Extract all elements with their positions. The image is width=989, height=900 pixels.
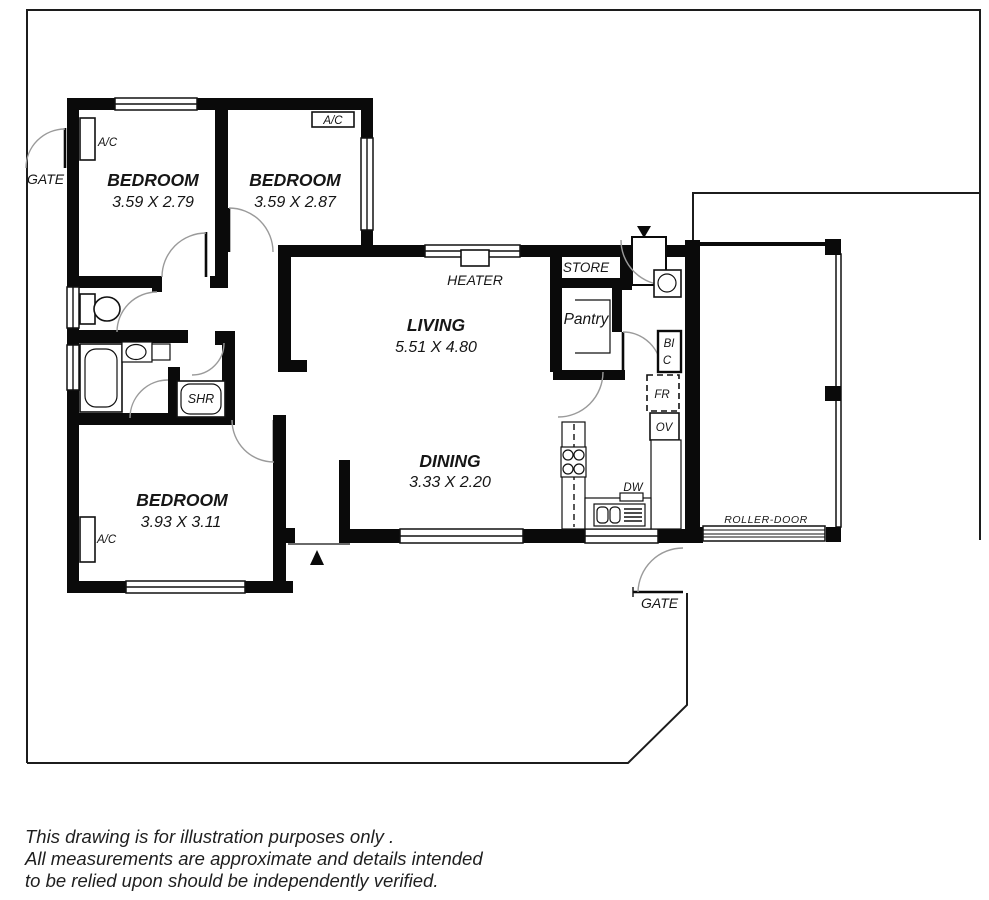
- window: [67, 287, 79, 328]
- room-dims-bedroom3: 3.93 X 3.11: [141, 514, 222, 531]
- door-arc: [229, 208, 273, 252]
- rear-fence-line: [693, 193, 980, 240]
- cooktop-fixture: [561, 447, 586, 477]
- bic-label-line2: C: [663, 355, 672, 367]
- wall: [152, 276, 162, 292]
- door-arc: [162, 233, 206, 277]
- wall: [278, 245, 291, 372]
- window: [67, 345, 79, 390]
- ac-label-bedroom1: A/C: [97, 137, 118, 149]
- laundry-trough: [654, 270, 681, 297]
- disclaimer-line-1: This drawing is for illustration purpose…: [25, 826, 394, 847]
- door-arc: [232, 420, 274, 462]
- wall: [67, 98, 373, 110]
- room-dims-dining: 3.33 X 2.20: [409, 474, 491, 491]
- sink-fixture: [594, 504, 645, 526]
- pantry-label: Pantry: [564, 311, 610, 328]
- room-label-dining: DINING: [419, 451, 481, 471]
- room-label-bedroom1: BEDROOM: [107, 170, 199, 190]
- kitchen-counter: [651, 440, 681, 529]
- room-label-bedroom2: BEDROOM: [249, 170, 341, 190]
- wall: [553, 245, 630, 257]
- disclaimer-line-3: to be relied upon should be independentl…: [25, 870, 438, 891]
- window: [361, 138, 373, 230]
- wall: [612, 278, 622, 332]
- floor-plan-page: BEDROOM 3.59 X 2.79 BEDROOM 3.59 X 2.87 …: [0, 0, 989, 900]
- wall: [685, 240, 700, 543]
- disclaimer-line-2: All measurements are approximate and det…: [24, 848, 483, 869]
- bathtub-fixture: [80, 344, 122, 412]
- gate-bottom-arc: [638, 548, 683, 592]
- gate-bottom-label: GATE: [641, 595, 679, 611]
- ac-label-bedroom2: A/C: [322, 115, 343, 127]
- store-label: STORE: [563, 260, 610, 275]
- door-arc: [623, 332, 661, 370]
- carport: [700, 239, 841, 542]
- heater-label: HEATER: [447, 272, 503, 288]
- carport-post: [825, 239, 841, 255]
- gate-left-label: GATE: [27, 171, 65, 187]
- ac-unit-bedroom3: [80, 517, 95, 562]
- window: [400, 529, 523, 543]
- disclaimer-text: This drawing is for illustration purpose…: [24, 826, 483, 891]
- door-arc: [192, 343, 224, 375]
- room-dims-living: 5.51 X 4.80: [395, 339, 477, 356]
- boundary-bottom: [27, 593, 687, 763]
- shower-label: SHR: [188, 392, 214, 406]
- roller-door: [703, 526, 825, 541]
- wall: [553, 370, 625, 380]
- wall: [67, 276, 160, 288]
- vanity-basin: [122, 342, 170, 362]
- wall: [685, 527, 703, 543]
- wall: [67, 330, 188, 343]
- door-arc: [117, 292, 157, 332]
- entry-arrow-front-icon: [310, 550, 324, 565]
- ac-label-bedroom3: A/C: [96, 534, 117, 546]
- toilet-fixture: [80, 294, 120, 324]
- fridge-label: FR: [654, 389, 669, 401]
- ac-unit-bedroom1: [80, 118, 95, 160]
- carport-post: [825, 386, 841, 401]
- room-label-living: LIVING: [407, 315, 466, 335]
- wall: [210, 276, 228, 288]
- room-dims-bedroom2: 3.59 X 2.87: [254, 194, 337, 211]
- room-label-bedroom3: BEDROOM: [136, 490, 228, 510]
- wall: [278, 360, 307, 372]
- heater-unit: [461, 250, 489, 266]
- window: [585, 529, 658, 543]
- window: [126, 581, 245, 593]
- wall: [339, 460, 350, 543]
- wall: [215, 110, 228, 288]
- door-arc: [130, 380, 168, 418]
- dishwasher-unit: [620, 493, 643, 501]
- roller-door-label: ROLLER-DOOR: [724, 514, 808, 526]
- wall: [550, 245, 562, 372]
- wall: [273, 528, 295, 543]
- dishwasher-label: DW: [623, 482, 643, 494]
- floor-plan-canvas: BEDROOM 3.59 X 2.79 BEDROOM 3.59 X 2.87 …: [0, 0, 989, 900]
- carport-post: [826, 527, 841, 542]
- bic-label-line1: BI: [664, 338, 676, 350]
- room-dims-bedroom1: 3.59 X 2.79: [112, 194, 194, 211]
- oven-label: OV: [656, 422, 674, 434]
- gate-left-arc: [26, 129, 65, 168]
- window: [115, 98, 197, 110]
